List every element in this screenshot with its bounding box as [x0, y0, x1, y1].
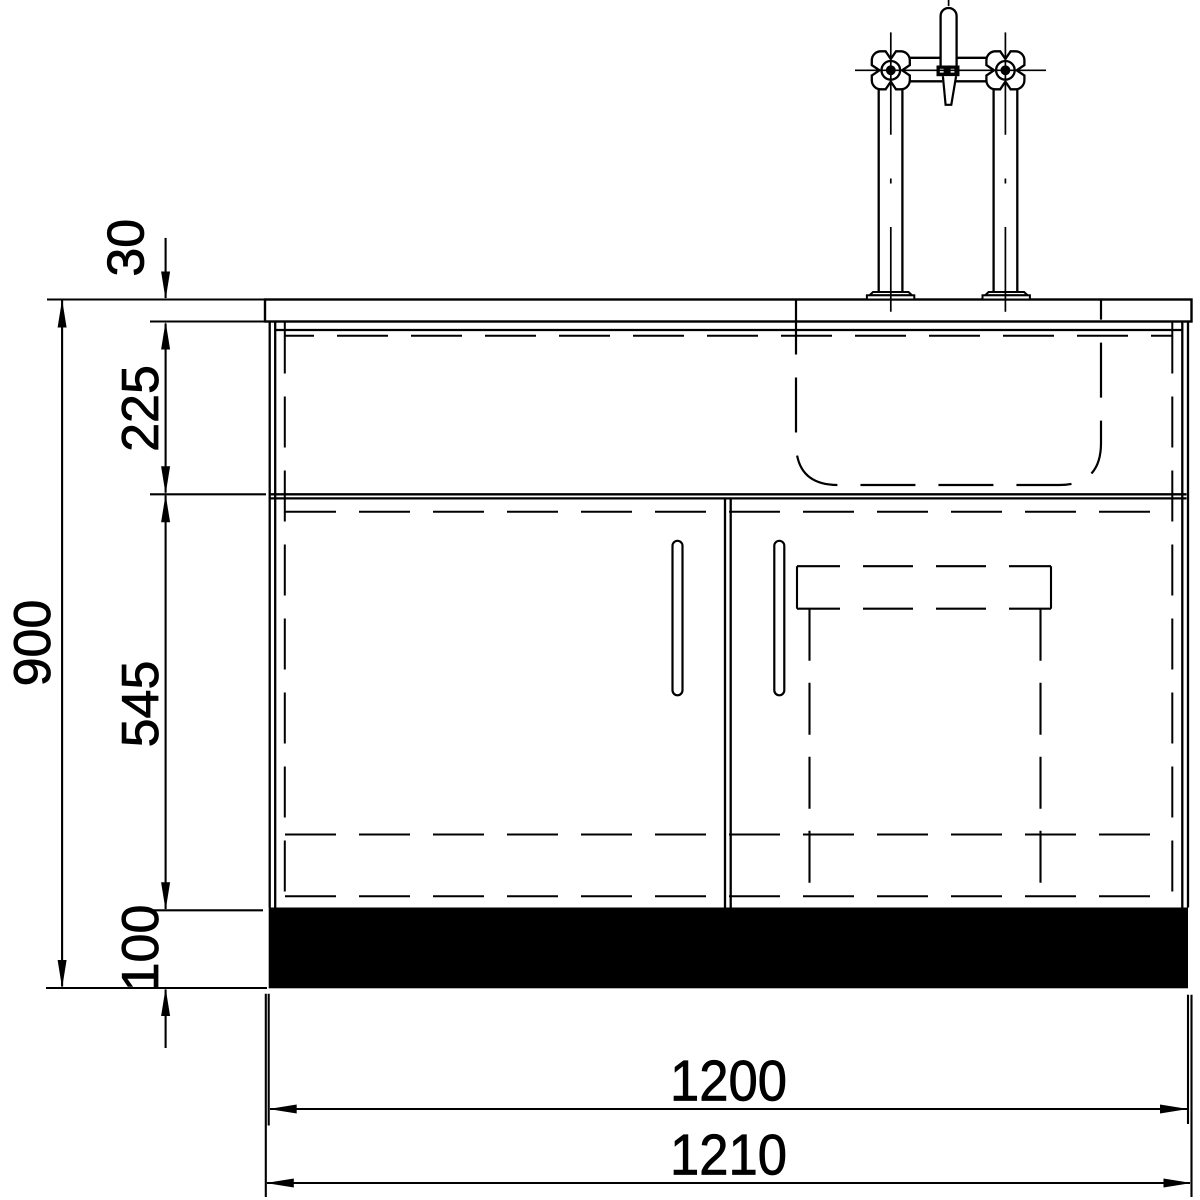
- svg-text:100: 100: [112, 905, 170, 992]
- svg-text:225: 225: [112, 365, 170, 452]
- svg-text:900: 900: [4, 600, 62, 687]
- svg-text:1210: 1210: [670, 1124, 787, 1188]
- svg-text:30: 30: [98, 219, 156, 277]
- svg-text:1200: 1200: [670, 1050, 787, 1114]
- svg-text:545: 545: [112, 661, 170, 748]
